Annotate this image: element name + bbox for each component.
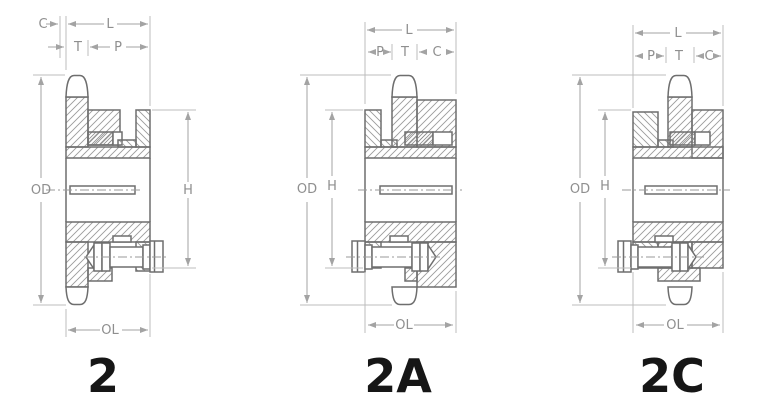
- drawing-style-2C: L P T C OD H OL 2C: [570, 25, 730, 403]
- barrel-section-lower: [633, 222, 723, 242]
- sprocket-hub-styles-diagram: C L T P OD H OL 2: [0, 0, 769, 420]
- key-section: [88, 132, 113, 145]
- dim-label-P: P: [376, 45, 384, 60]
- second-plate-foot: [118, 140, 136, 147]
- style-label-2A: 2A: [364, 349, 432, 403]
- dim-label-OL: OL: [101, 323, 119, 338]
- sprocket-body: [358, 76, 462, 305]
- dim-label-OD: OD: [31, 183, 51, 198]
- drawing-style-2A: L P T C OD H OL 2A: [297, 22, 462, 403]
- style-label-2: 2: [87, 349, 119, 403]
- dim-label-OD: OD: [297, 182, 317, 197]
- style-label-2C: 2C: [639, 349, 705, 403]
- screw-head: [150, 241, 163, 272]
- diagram-canvas: C L T P OD H OL 2: [0, 0, 769, 420]
- dim-label-C: C: [432, 45, 441, 60]
- tooth-plate-section: [66, 97, 88, 147]
- dim-label-T: T: [73, 40, 82, 55]
- left-hub-section: [633, 112, 658, 147]
- dim-label-H: H: [327, 179, 337, 194]
- barrel-section-lower: [66, 222, 150, 242]
- right-hub-lower: [692, 242, 723, 268]
- tooth-plate-lower: [66, 242, 88, 287]
- barrel-section-upper: [66, 147, 150, 158]
- dim-label-L: L: [405, 23, 413, 38]
- barrel-section-upper: [365, 147, 456, 158]
- key-section: [405, 132, 433, 145]
- tooth-profile-bottom: [668, 287, 692, 305]
- second-plate-section: [365, 110, 381, 147]
- dim-label-L: L: [674, 26, 682, 41]
- keyseat-gap: [433, 132, 452, 145]
- dim-label-H: H: [183, 183, 193, 198]
- second-plate-section: [136, 110, 150, 147]
- screw-boss: [113, 236, 131, 242]
- screw-boss: [655, 236, 673, 242]
- dim-label-T: T: [400, 45, 409, 60]
- dimensions: L P T C OD H OL: [570, 25, 723, 333]
- dimensions: C L T P OD H OL: [31, 16, 196, 338]
- screw-head: [352, 241, 365, 272]
- tooth-profile-top: [392, 76, 417, 98]
- dim-label-OD: OD: [570, 182, 590, 197]
- tooth-profile-bottom: [392, 287, 417, 305]
- dim-label-OL: OL: [666, 318, 684, 333]
- tooth-profile-bottom: [66, 287, 88, 305]
- barrel-section-lower: [365, 222, 456, 242]
- dim-label-L: L: [106, 17, 114, 32]
- key-section: [670, 132, 695, 145]
- barrel-section-upper: [633, 147, 723, 158]
- dim-label-P: P: [114, 40, 122, 55]
- dim-label-H: H: [600, 179, 610, 194]
- dim-label-OL: OL: [395, 318, 413, 333]
- screw-boss: [390, 236, 408, 242]
- dim-label-P: P: [647, 49, 655, 64]
- dim-label-C: C: [704, 49, 713, 64]
- drawing-style-2: C L T P OD H OL 2: [31, 16, 196, 403]
- dim-label-T: T: [674, 49, 683, 64]
- tooth-profile-top: [66, 76, 88, 98]
- keyseat-gap: [695, 132, 710, 145]
- tooth-profile-top: [668, 76, 692, 98]
- screw-head: [618, 241, 631, 272]
